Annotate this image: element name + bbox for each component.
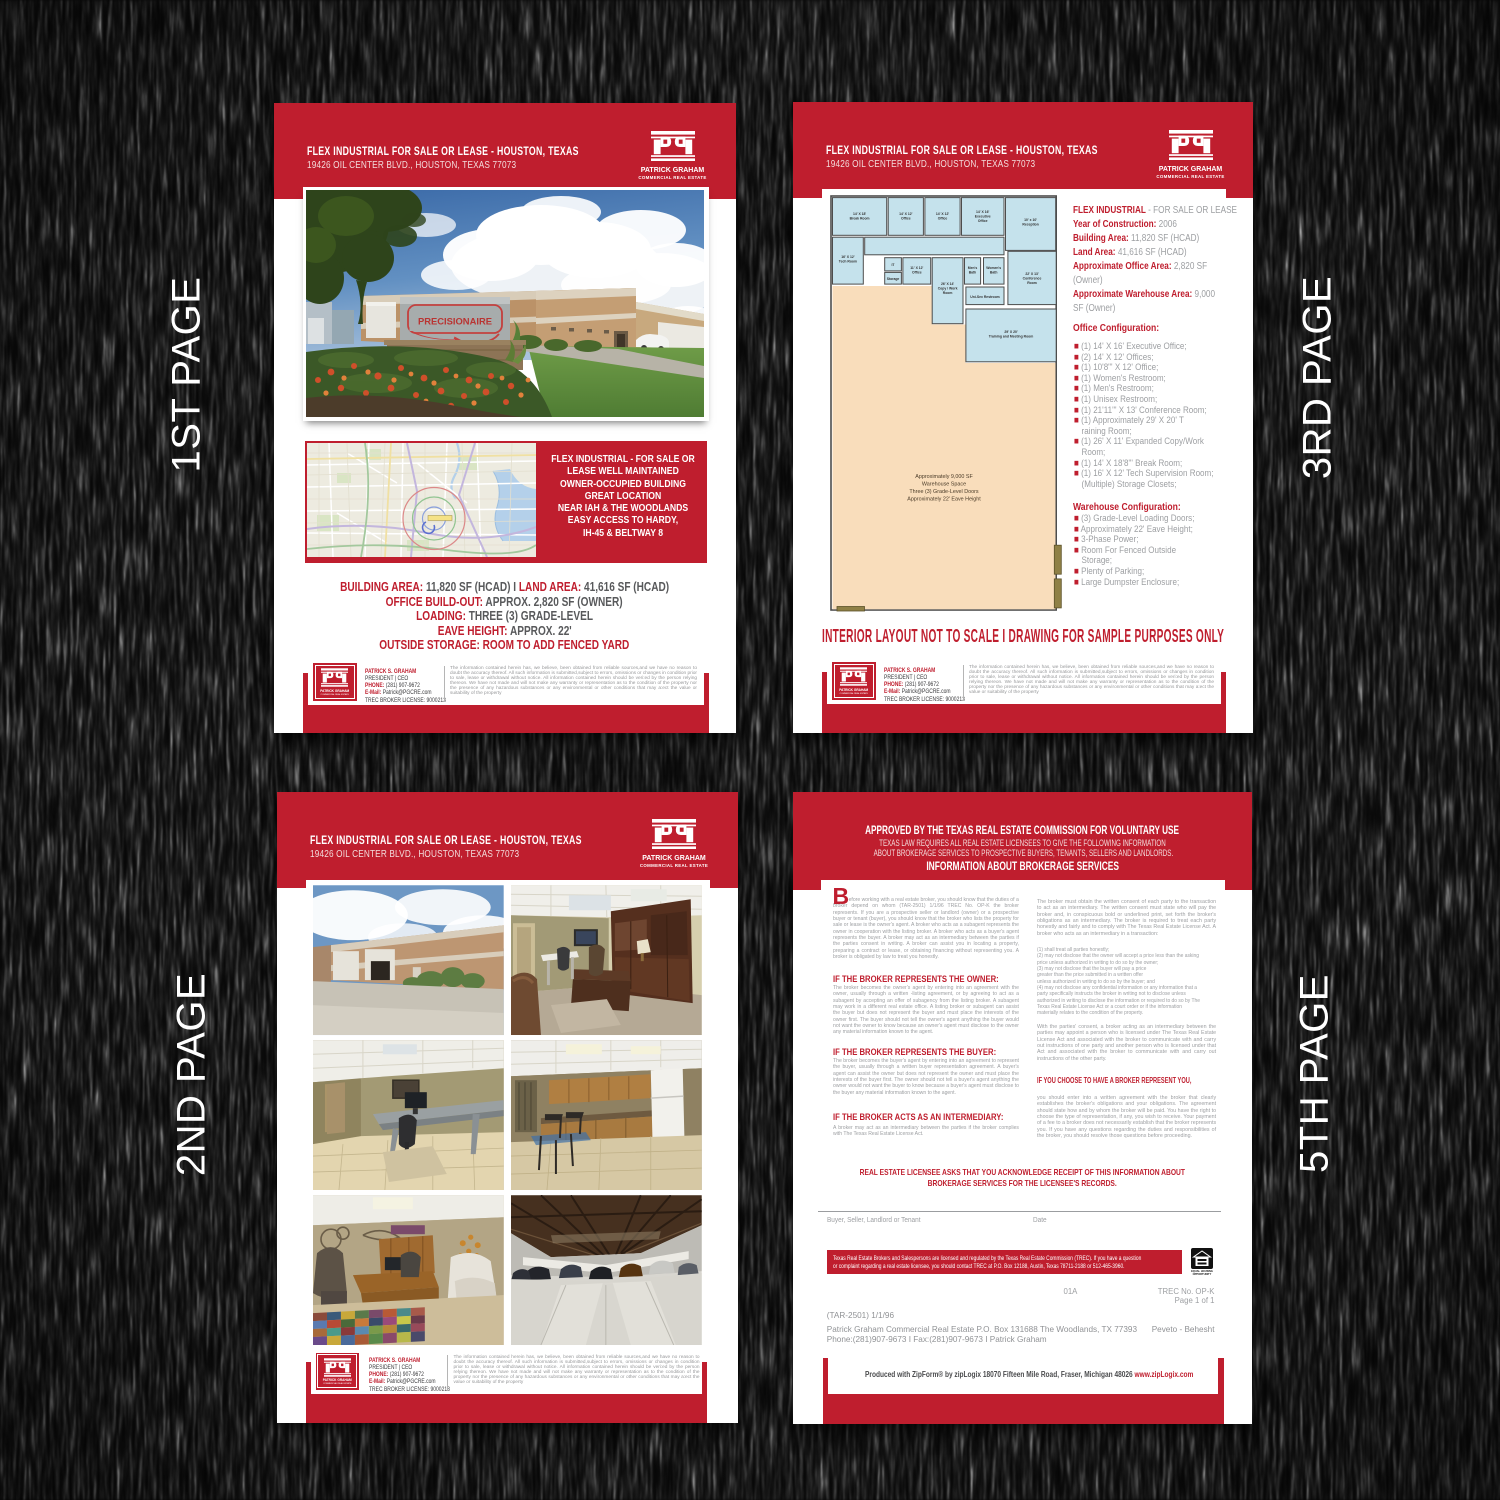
svg-text:Room: Room (942, 291, 952, 295)
svg-text:Warehouse Space: Warehouse Space (921, 482, 965, 488)
svg-text:Reception: Reception (1022, 223, 1038, 227)
svg-text:Women's: Women's (986, 266, 1001, 270)
svg-text:Bath: Bath (989, 271, 997, 275)
svg-text:Office: Office (977, 219, 987, 223)
svg-text:Copy / Work: Copy / Work (937, 287, 957, 291)
svg-text:10' x 10': 10' x 10' (1024, 218, 1037, 222)
svg-text:Uni-Sex Restroom: Uni-Sex Restroom (970, 295, 999, 299)
svg-text:14' X 12': 14' X 12' (899, 212, 912, 216)
svg-text:Storage: Storage (886, 277, 899, 281)
svg-text:Approximately 22' Eave Height: Approximately 22' Eave Height (907, 497, 981, 503)
svg-text:Executive: Executive (974, 215, 990, 219)
svg-text:Training and Meeting Room: Training and Meeting Room (988, 335, 1032, 339)
svg-text:14' X 12': 14' X 12' (935, 212, 948, 216)
svg-text:PRECISIONAIRE: PRECISIONAIRE (418, 316, 492, 327)
svg-text:11' X 12': 11' X 12' (910, 266, 923, 270)
svg-text:Tech Room: Tech Room (838, 260, 856, 264)
svg-text:16' X 12': 16' X 12' (841, 255, 854, 259)
svg-text:Office: Office (937, 217, 947, 221)
svg-text:14' X 18': 14' X 18' (852, 212, 865, 216)
svg-text:Approximately 9,000 SF: Approximately 9,000 SF (915, 474, 973, 480)
svg-text:Three (3) Grade-Level Doors: Three (3) Grade-Level Doors (909, 489, 979, 495)
svg-text:Office: Office (911, 271, 921, 275)
svg-text:22' X 13': 22' X 13' (1025, 272, 1038, 276)
svg-text:14' X 16': 14' X 16' (976, 210, 989, 214)
svg-text:26' X 14': 26' X 14' (940, 282, 953, 286)
svg-text:Office: Office (900, 217, 910, 221)
svg-text:Conference: Conference (1022, 277, 1041, 281)
svg-text:29' X 20': 29' X 20' (1004, 330, 1017, 334)
svg-text:Break Room: Break Room (849, 217, 869, 221)
svg-text:Room: Room (1027, 281, 1037, 285)
svg-text:OPPORTUNITY: OPPORTUNITY (1192, 1272, 1211, 1276)
svg-text:Bath: Bath (968, 271, 976, 275)
svg-text:Men's: Men's (967, 266, 977, 270)
